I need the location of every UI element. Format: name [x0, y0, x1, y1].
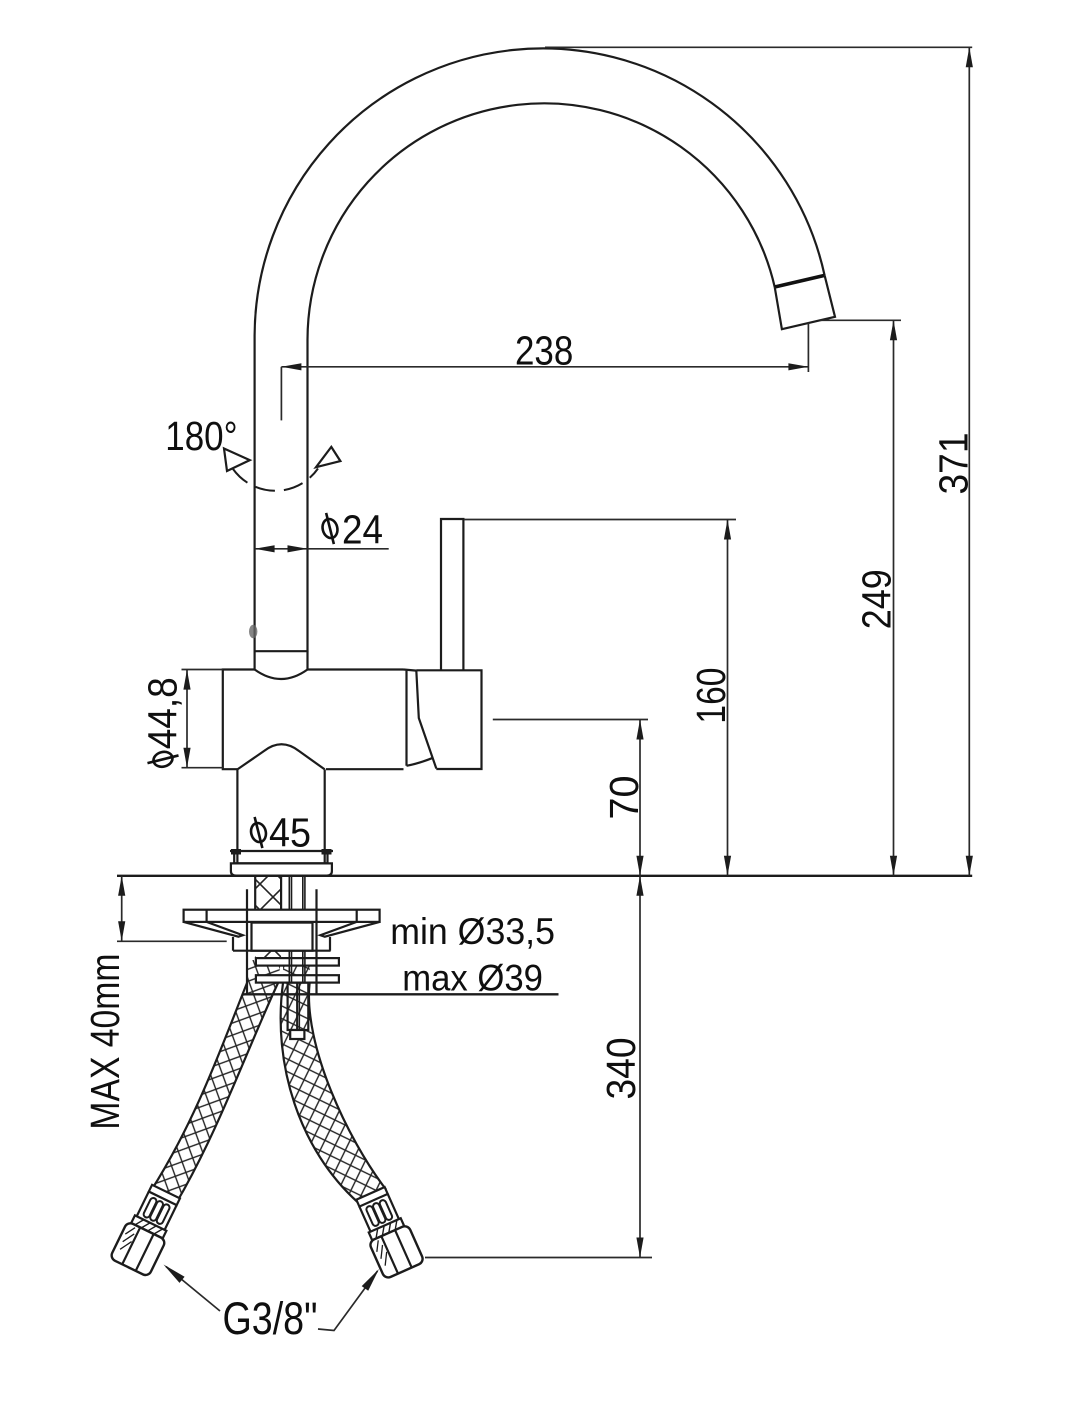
svg-text:249: 249: [854, 569, 900, 629]
svg-text:340: 340: [598, 1038, 644, 1100]
svg-text:MAX 40mm: MAX 40mm: [82, 954, 128, 1130]
svg-text:45: 45: [269, 810, 311, 856]
svg-text:238: 238: [515, 327, 573, 373]
svg-text:160: 160: [688, 668, 734, 724]
svg-text:24: 24: [342, 507, 383, 553]
svg-text:G3/8": G3/8": [223, 1293, 318, 1344]
svg-text:min Ø33,5: min Ø33,5: [390, 911, 555, 952]
svg-text:44,8: 44,8: [140, 677, 186, 749]
svg-text:max Ø39: max Ø39: [402, 957, 543, 998]
svg-text:70: 70: [601, 776, 647, 820]
svg-text:371: 371: [931, 433, 977, 495]
svg-text:180°: 180°: [165, 413, 237, 459]
